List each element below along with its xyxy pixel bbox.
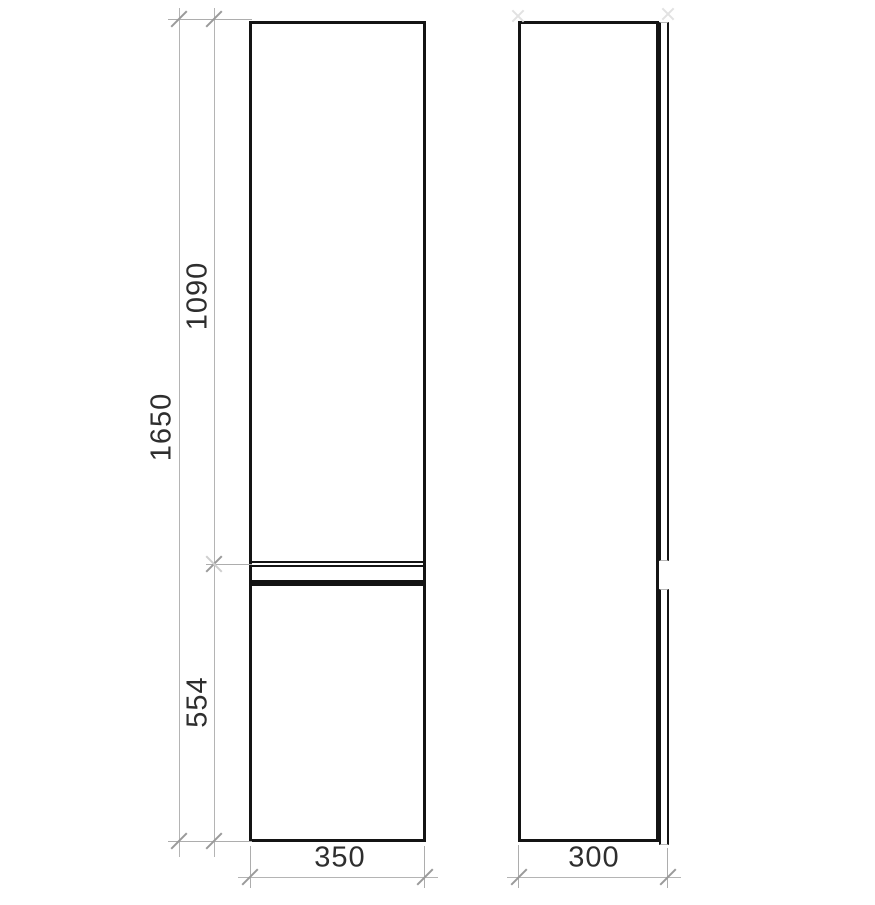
ext-line-side-left xyxy=(518,845,519,888)
dim-label-side-depth: 300 xyxy=(566,843,621,874)
front-lower-door-top-line xyxy=(252,580,423,586)
side-view-upper-door-panel xyxy=(659,22,669,561)
side-view-lower-door-panel xyxy=(659,589,669,845)
side-view-outline xyxy=(518,21,659,842)
dim-line-total-height xyxy=(179,8,180,857)
ext-line-front-left xyxy=(250,846,251,888)
ext-line-side-right xyxy=(667,848,668,888)
dim-line-side-depth xyxy=(507,877,681,878)
front-upper-door-bottom-line xyxy=(252,561,423,563)
dim-label-lower-section: 554 xyxy=(183,674,214,729)
dim-line-front-width xyxy=(238,877,438,878)
front-divider-line xyxy=(252,565,423,567)
front-view-outline xyxy=(249,21,426,842)
ext-line-front-right xyxy=(424,846,425,888)
dim-label-upper-section: 1090 xyxy=(183,260,214,333)
technical-drawing: 1650 1090 554 350 300 xyxy=(0,0,875,905)
dim-label-front-width: 350 xyxy=(312,843,367,874)
dim-label-total-height: 1650 xyxy=(147,391,178,464)
dim-line-section-heights xyxy=(214,8,215,857)
